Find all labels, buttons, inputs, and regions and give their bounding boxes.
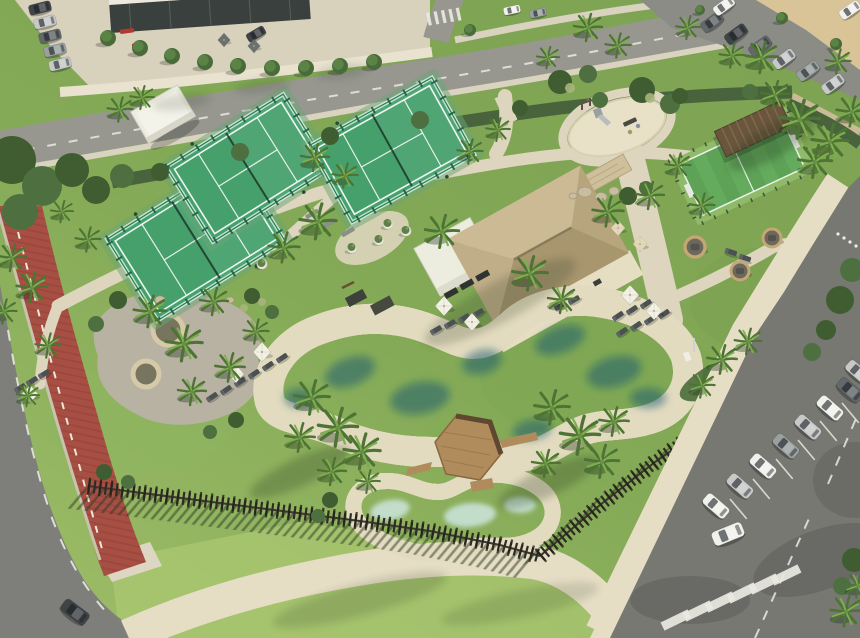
boulder — [569, 193, 577, 199]
shrub — [672, 88, 688, 104]
bollard — [854, 244, 857, 247]
shrub — [311, 509, 325, 523]
boulder — [609, 187, 619, 195]
shrub — [96, 464, 112, 480]
shrub — [228, 412, 244, 428]
bollard — [836, 232, 839, 235]
boulder — [595, 193, 607, 202]
shrub — [742, 84, 758, 100]
bollard — [842, 236, 845, 239]
shrub — [88, 316, 104, 332]
shrub — [803, 343, 821, 361]
flower-bush — [240, 304, 248, 312]
shrub — [619, 187, 637, 205]
shrub — [244, 288, 260, 304]
shrub — [265, 305, 279, 319]
flower-bush — [565, 83, 575, 93]
shrub — [2, 194, 38, 230]
shrub — [109, 291, 127, 309]
aerial-photo-stage — [0, 0, 860, 638]
shrub — [322, 492, 338, 508]
shrub — [110, 164, 134, 188]
shrub — [321, 127, 339, 145]
water-depth — [630, 388, 666, 408]
shrub — [816, 320, 836, 340]
flower-bush — [645, 93, 655, 103]
shrub — [231, 143, 249, 161]
shrub — [82, 176, 110, 204]
boulder — [578, 187, 592, 197]
shrub — [55, 153, 89, 187]
shrub — [203, 425, 217, 439]
aerial-resort-scene — [0, 0, 860, 638]
bollard — [848, 240, 851, 243]
shrub — [121, 475, 135, 489]
shrub — [411, 111, 429, 129]
shrub — [579, 65, 597, 83]
shrub — [826, 286, 854, 314]
shrub — [592, 92, 608, 108]
shrub — [151, 163, 169, 181]
flower-bush — [258, 298, 266, 306]
shrub — [512, 100, 528, 116]
